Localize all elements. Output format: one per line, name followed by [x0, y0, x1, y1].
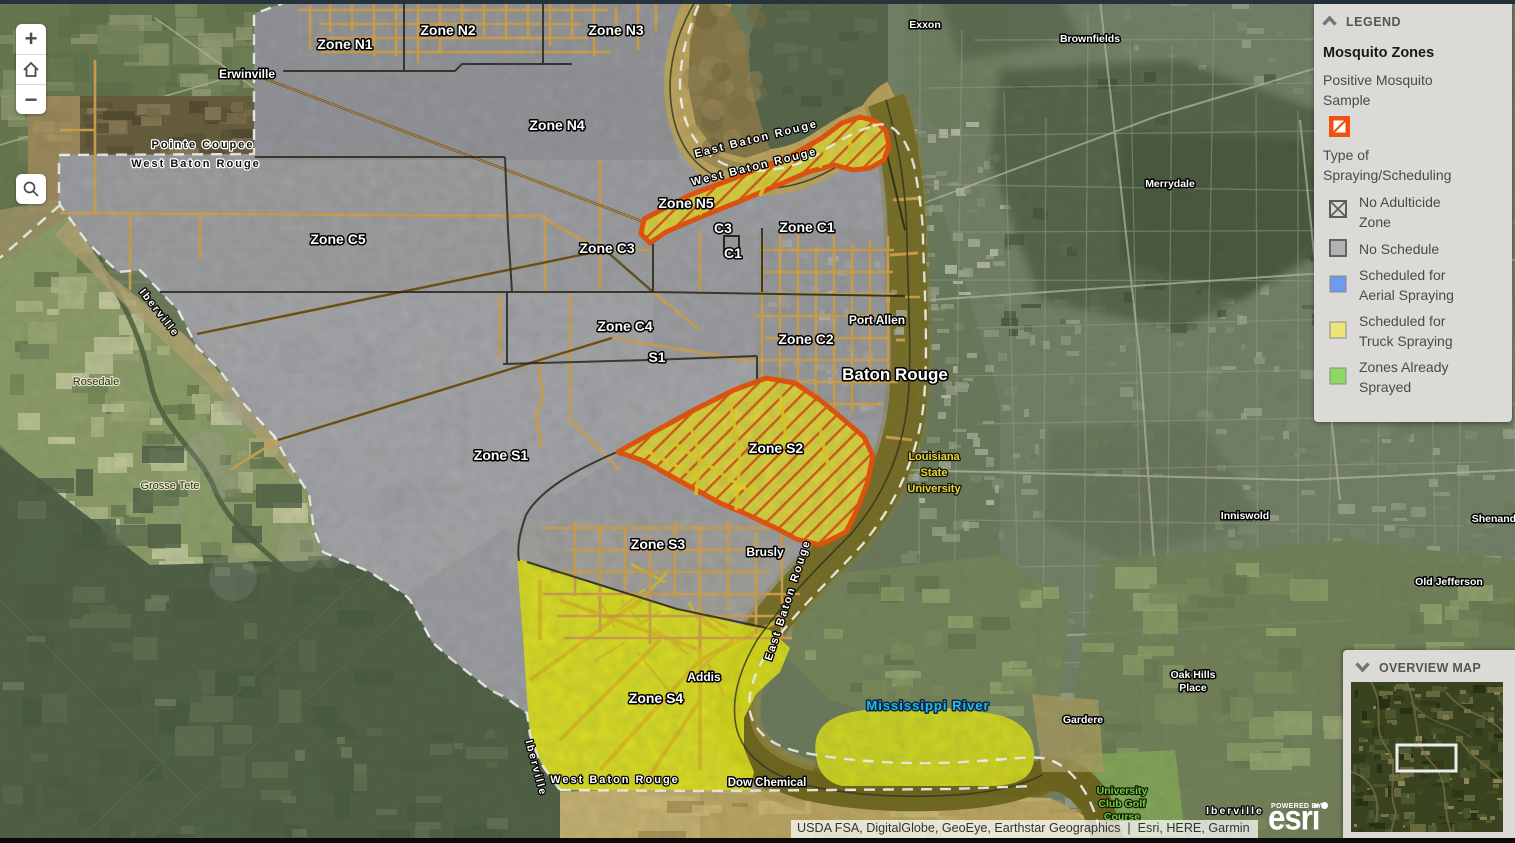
svg-text:University: University — [907, 483, 961, 495]
svg-text:Zone N2: Zone N2 — [420, 22, 475, 38]
svg-text:West Baton Rouge: West Baton Rouge — [131, 158, 261, 170]
svg-text:Zone C3: Zone C3 — [579, 240, 634, 256]
svg-text:Zone C4: Zone C4 — [597, 318, 652, 334]
svg-text:Rosedale: Rosedale — [73, 376, 119, 388]
svg-text:State: State — [921, 467, 948, 479]
svg-text:Mississippi River: Mississippi River — [866, 698, 989, 713]
svg-text:Zone C5: Zone C5 — [310, 231, 365, 247]
svg-text:Zone N4: Zone N4 — [529, 117, 584, 133]
svg-text:University: University — [1097, 785, 1148, 797]
svg-text:Exxon: Exxon — [909, 19, 941, 31]
svg-text:Club Golf: Club Golf — [1098, 798, 1146, 810]
svg-text:Louisiana: Louisiana — [908, 451, 960, 463]
svg-text:Brusly: Brusly — [746, 545, 784, 559]
svg-text:Addis: Addis — [687, 670, 721, 684]
svg-text:Zone S2: Zone S2 — [749, 440, 804, 456]
svg-text:Iberville: Iberville — [1206, 805, 1264, 817]
svg-text:Zone N1: Zone N1 — [317, 36, 372, 52]
svg-text:Brownfields: Brownfields — [1060, 33, 1120, 45]
svg-text:Zone N5: Zone N5 — [658, 195, 713, 211]
svg-text:Inniswold: Inniswold — [1221, 510, 1269, 522]
svg-text:C1: C1 — [724, 245, 742, 261]
svg-text:Pointe Coupee: Pointe Coupee — [151, 139, 254, 151]
svg-text:Zone C1: Zone C1 — [779, 219, 834, 235]
svg-text:C3: C3 — [714, 220, 732, 236]
svg-text:Dow Chemical: Dow Chemical — [728, 777, 807, 789]
svg-text:Zone C2: Zone C2 — [778, 331, 833, 347]
svg-text:Baton Rouge: Baton Rouge — [842, 365, 948, 384]
svg-text:Merrydale: Merrydale — [1145, 178, 1195, 190]
svg-text:Shenandoa: Shenandoa — [1472, 513, 1515, 525]
svg-text:Erwinville: Erwinville — [219, 67, 275, 81]
svg-text:Oak Hills: Oak Hills — [1171, 669, 1216, 681]
svg-text:Zone S3: Zone S3 — [631, 536, 686, 552]
svg-text:S1: S1 — [648, 349, 665, 365]
svg-text:Place: Place — [1179, 682, 1207, 694]
svg-text:Port Allen: Port Allen — [849, 313, 905, 327]
svg-text:Old Jefferson: Old Jefferson — [1415, 576, 1483, 588]
svg-text:West Baton Rouge: West Baton Rouge — [550, 774, 680, 786]
svg-text:Zone S1: Zone S1 — [474, 447, 529, 463]
svg-text:Zone S4: Zone S4 — [629, 690, 684, 706]
svg-text:Gardere: Gardere — [1063, 714, 1103, 726]
svg-text:Grosse Tete: Grosse Tete — [140, 480, 199, 492]
svg-text:Zone N3: Zone N3 — [588, 22, 643, 38]
